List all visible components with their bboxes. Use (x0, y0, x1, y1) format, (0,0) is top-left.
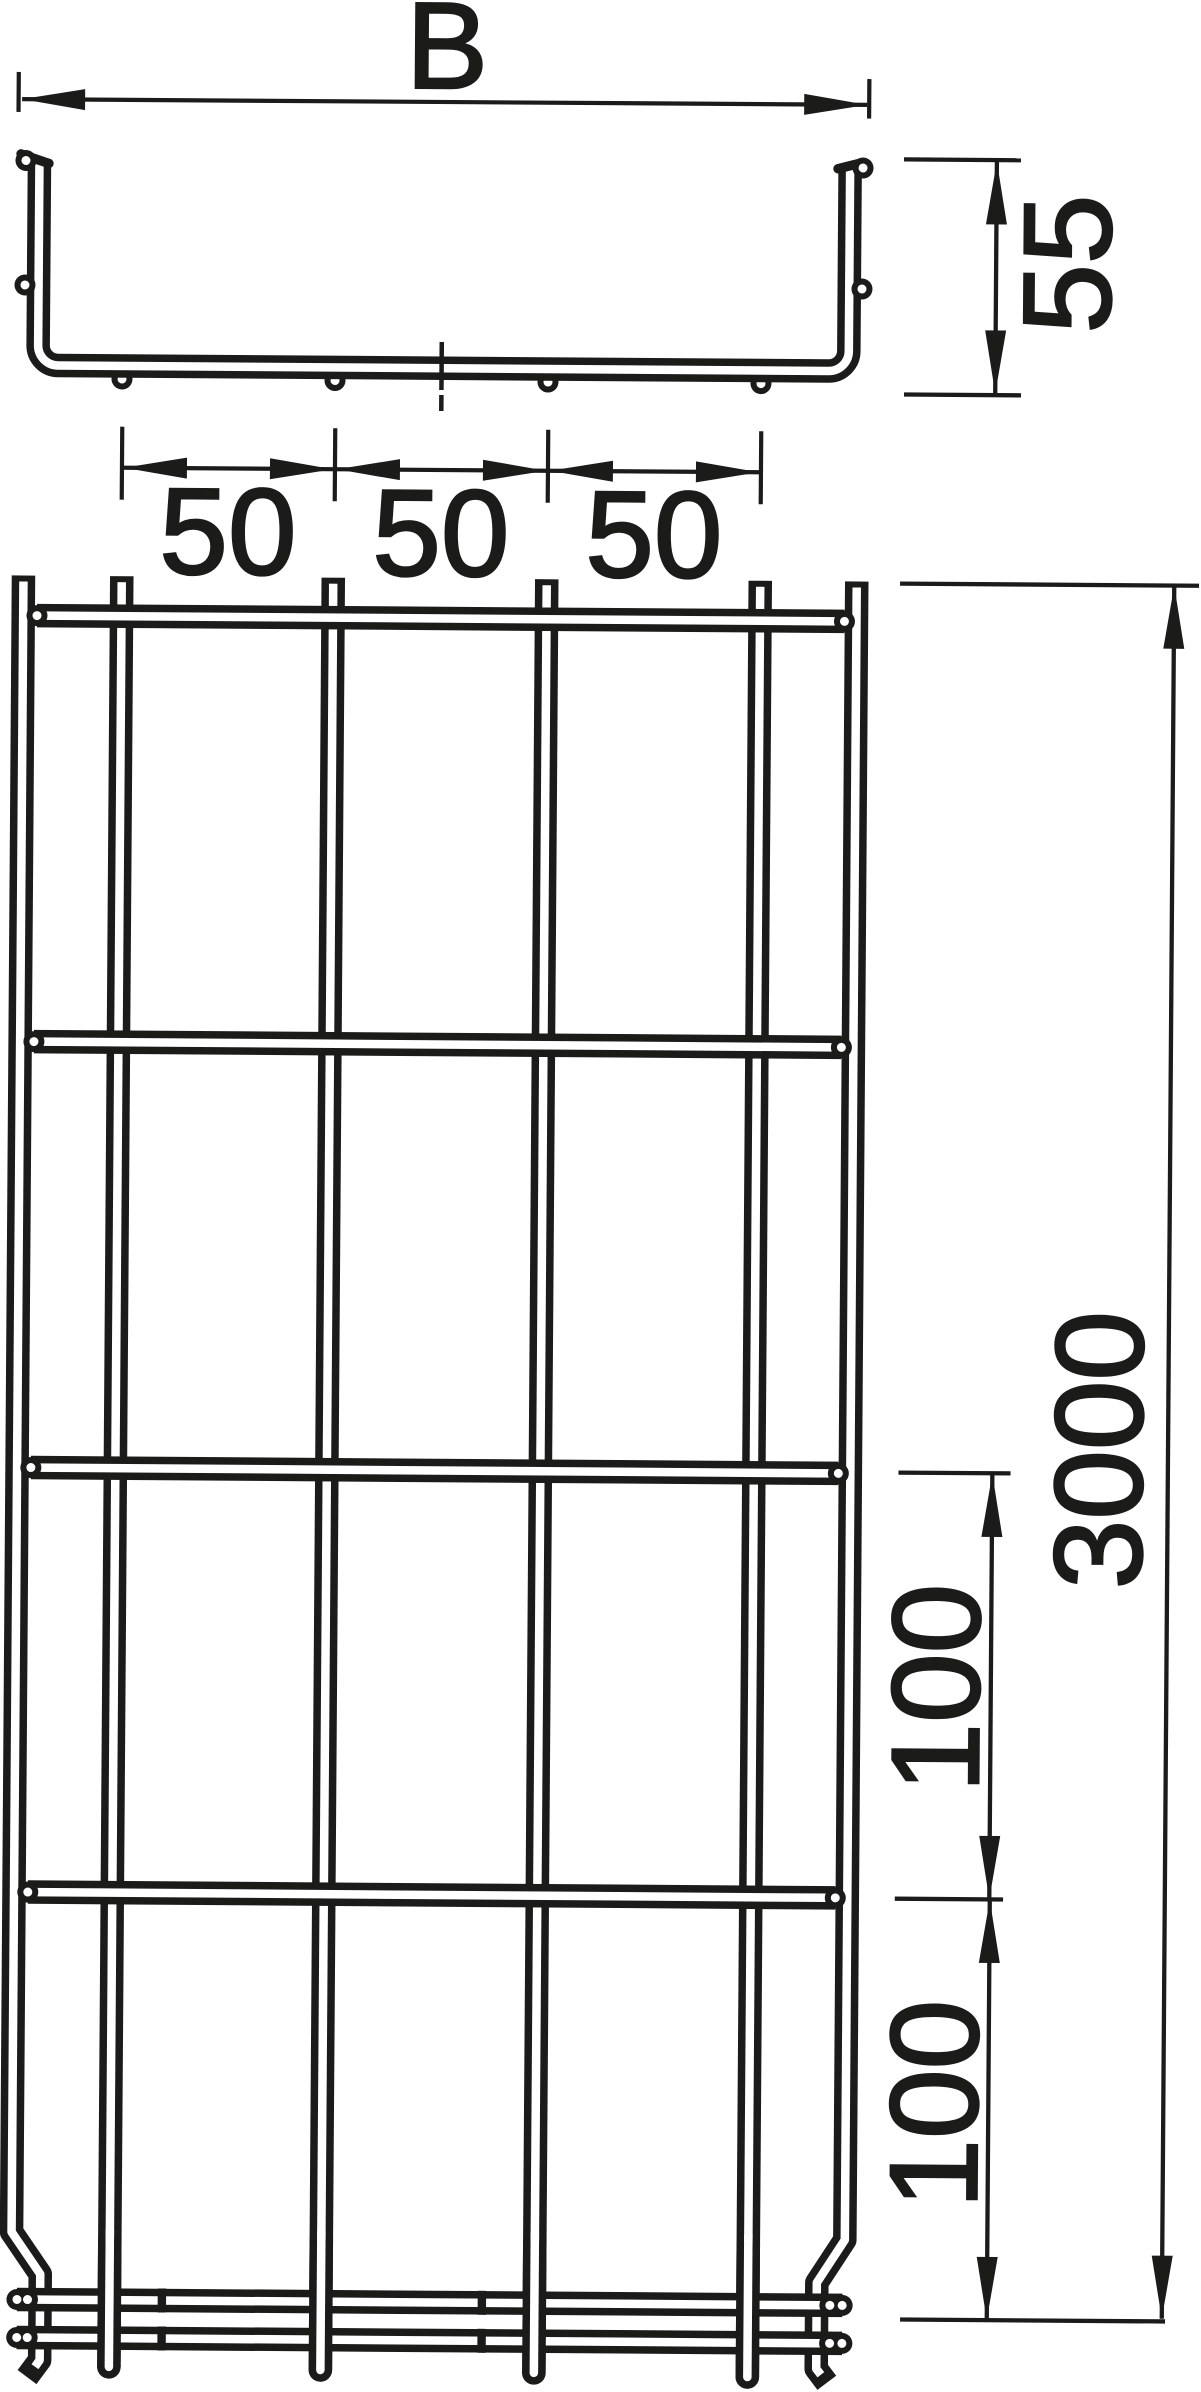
svg-text:B: B (406, 0, 489, 115)
svg-text:50: 50 (159, 463, 297, 601)
svg-text:100: 100 (866, 1583, 1006, 1793)
svg-text:55: 55 (998, 194, 1138, 334)
svg-text:100: 100 (865, 1999, 1005, 2209)
svg-text:50: 50 (372, 465, 510, 603)
svg-text:50: 50 (585, 467, 723, 605)
svg-text:3000: 3000 (1029, 1311, 1170, 1590)
